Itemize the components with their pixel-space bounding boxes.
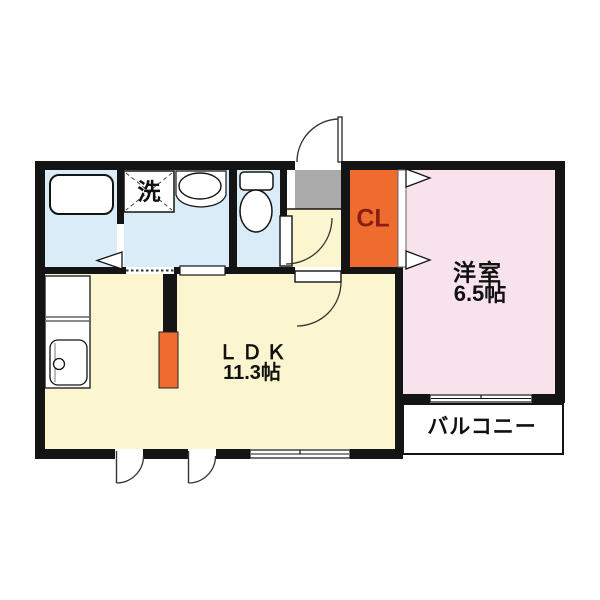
wall-bath-wash xyxy=(117,170,124,224)
ldk-window2-swing xyxy=(189,456,216,483)
wall-bottom-3 xyxy=(216,449,250,459)
wall-mid-a4 xyxy=(341,267,403,274)
entrance-genkan xyxy=(295,170,341,209)
entrance-door-swing xyxy=(297,119,338,162)
ldk-area: 11.3帖 xyxy=(223,363,281,383)
wall-mid-a3 xyxy=(225,267,295,274)
wall-top-left xyxy=(35,161,295,170)
ldk-window2-gap xyxy=(188,449,216,459)
balcony-label: バルコニー xyxy=(427,417,537,438)
ldk-sliding-window xyxy=(250,450,350,458)
laundry-label: 洗 xyxy=(138,181,161,204)
bathroom-floor xyxy=(45,170,117,267)
wall-wash-toilet xyxy=(229,170,237,267)
ldk-window1-swing xyxy=(117,456,144,483)
closet-label: CL xyxy=(356,207,389,232)
western-room-area: 6.5帖 xyxy=(454,283,507,305)
wall-right xyxy=(555,161,565,403)
floor-plan: 洗 CL 洋室 6.5帖 ＬＤＫ 11.3帖 バルコニー xyxy=(0,0,600,600)
wall-western-bottom-2 xyxy=(532,394,555,403)
wall-mid-a1 xyxy=(45,267,126,274)
western-sliding-window xyxy=(430,395,532,402)
wall-bottom-2 xyxy=(143,449,188,459)
wall-toilet-hall xyxy=(280,170,287,216)
wall-kitchen-stub xyxy=(163,274,177,332)
wall-western-bottom-1 xyxy=(398,394,430,403)
entrance-step-strip xyxy=(287,170,295,209)
wall-top-right xyxy=(341,161,565,170)
wall-bottom-1 xyxy=(35,449,115,459)
wall-ldk-western xyxy=(395,267,403,459)
wall-mid-a2 xyxy=(174,267,180,274)
entrance-door-leaf xyxy=(338,117,342,162)
toilet-floor xyxy=(237,170,280,267)
hallway-floor xyxy=(287,209,341,267)
ldk-label: ＬＤＫ xyxy=(218,343,290,363)
ldk-window1-gap xyxy=(115,449,143,459)
wall-hall-closet xyxy=(341,170,350,267)
wall-left xyxy=(35,161,45,459)
